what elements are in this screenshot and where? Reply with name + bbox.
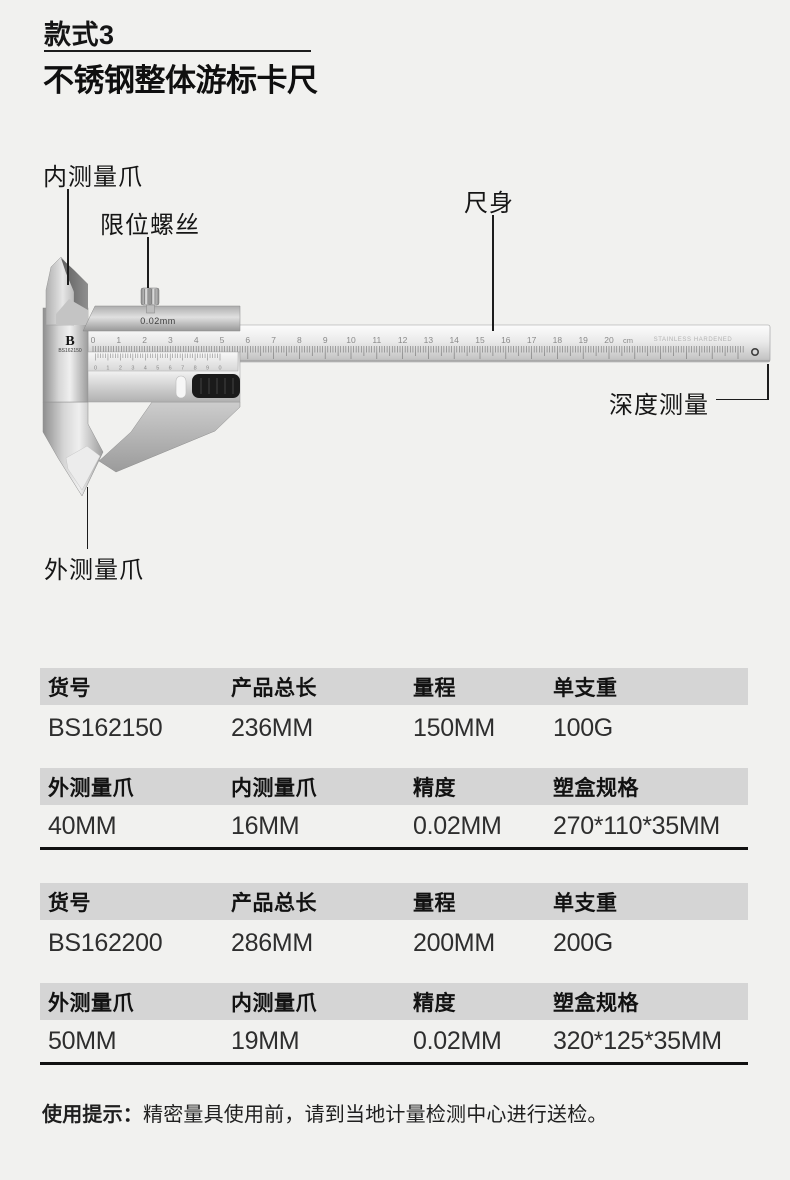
svg-text:9: 9 <box>323 335 328 345</box>
svg-text:1: 1 <box>106 366 109 372</box>
product-detail-page: 款式3 不锈钢整体游标卡尺 <box>0 0 790 1180</box>
spec-value-cell: 200MM <box>409 929 549 958</box>
spec-value-cell: BS162200 <box>40 929 227 958</box>
svg-text:9: 9 <box>206 366 209 372</box>
depth-hole <box>752 349 758 355</box>
style-label: 款式3 <box>44 13 115 52</box>
callout-inner-jaw: 内测量爪 <box>43 157 143 192</box>
svg-text:18: 18 <box>553 335 563 345</box>
svg-text:7: 7 <box>181 366 184 372</box>
spec-header-cell: 塑盒规格 <box>549 772 748 802</box>
spec-value-cell: 286MM <box>227 929 409 958</box>
svg-text:7: 7 <box>271 335 276 345</box>
callout-beam: 尺身 <box>464 183 514 218</box>
brand-logo: B <box>65 334 74 349</box>
title-divider <box>44 50 311 52</box>
usage-note-prefix: 使用提示： <box>42 1104 143 1126</box>
leader-depth-horizontal <box>716 399 768 401</box>
spec-header-cell: 精度 <box>409 987 549 1017</box>
callout-limit-screw: 限位螺丝 <box>100 205 200 240</box>
spec-header-cell: 量程 <box>409 672 549 702</box>
leader-limit-screw <box>147 237 149 288</box>
svg-text:4: 4 <box>194 335 199 345</box>
svg-text:8: 8 <box>194 366 197 372</box>
spec-header-cell: 精度 <box>409 772 549 802</box>
spec-value-row: 40MM 16MM 0.02MM 270*110*35MM <box>40 805 748 847</box>
svg-text:6: 6 <box>169 366 172 372</box>
spec-value-cell: 270*110*35MM <box>549 812 748 841</box>
svg-text:5: 5 <box>220 335 225 345</box>
usage-note: 使用提示：精密量具使用前，请到当地计量检测中心进行送检。 <box>42 1098 608 1127</box>
svg-text:14: 14 <box>449 335 459 345</box>
spec-header-cell: 货号 <box>40 887 227 917</box>
outer-jaw-movable <box>99 402 240 472</box>
slider-slot <box>176 376 186 398</box>
spec-value-cell: 100G <box>549 714 748 743</box>
svg-text:3: 3 <box>168 335 173 345</box>
svg-text:20: 20 <box>604 335 614 345</box>
model-engraving: BS162150 <box>58 348 82 354</box>
caliper-diagram: 01234567891011121314151617181920cmSTAINL… <box>0 140 790 610</box>
svg-text:0: 0 <box>91 335 96 345</box>
spec-value-row: BS162150 236MM 150MM 100G <box>40 705 748 768</box>
svg-text:1: 1 <box>116 335 121 345</box>
spec-header-cell: 货号 <box>40 672 227 702</box>
svg-text:16: 16 <box>501 335 511 345</box>
leader-beam <box>492 215 494 331</box>
spec-header-cell: 外测量爪 <box>40 987 227 1017</box>
svg-text:11: 11 <box>372 335 381 345</box>
svg-text:STAINLESS HARDENED: STAINLESS HARDENED <box>654 337 733 343</box>
svg-text:4: 4 <box>144 366 147 372</box>
spec-header-row: 货号 产品总长 量程 单支重 <box>40 883 748 920</box>
spec-value-cell: 40MM <box>40 812 227 841</box>
svg-text:13: 13 <box>424 335 434 345</box>
callout-outer-jaw: 外测量爪 <box>44 550 144 585</box>
spec-value-cell: BS162150 <box>40 714 227 743</box>
leader-outer-jaw <box>87 487 89 549</box>
outer-jaw-fixed <box>43 402 103 496</box>
callout-depth: 深度测量 <box>609 385 709 420</box>
spec-header-cell: 量程 <box>409 887 549 917</box>
thumb-grip <box>192 374 240 398</box>
spec-value-row: 50MM 19MM 0.02MM 320*125*35MM <box>40 1020 748 1062</box>
svg-text:2: 2 <box>142 335 147 345</box>
spec-header-row: 外测量爪 内测量爪 精度 塑盒规格 <box>40 983 748 1020</box>
svg-text:0: 0 <box>218 366 221 372</box>
svg-text:17: 17 <box>527 335 537 345</box>
svg-text:3: 3 <box>131 366 134 372</box>
spec-value-cell: 150MM <box>409 714 549 743</box>
spec-header-cell: 塑盒规格 <box>549 987 748 1017</box>
spec-header-cell: 内测量爪 <box>227 987 409 1017</box>
leader-inner-jaw <box>67 189 69 285</box>
table-bottom-rule <box>40 847 748 850</box>
svg-text:10: 10 <box>346 335 356 345</box>
spec-header-row: 货号 产品总长 量程 单支重 <box>40 668 748 705</box>
spec-value-cell: 19MM <box>227 1027 409 1056</box>
svg-text:12: 12 <box>398 335 408 345</box>
spec-header-row: 外测量爪 内测量爪 精度 塑盒规格 <box>40 768 748 805</box>
spec-value-cell: 0.02MM <box>409 812 549 841</box>
spec-table-bs162150: 货号 产品总长 量程 单支重 BS162150 236MM 150MM 100G… <box>40 668 748 850</box>
spec-header-cell: 内测量爪 <box>227 772 409 802</box>
spec-value-cell: 236MM <box>227 714 409 743</box>
spec-value-cell: 0.02MM <box>409 1027 549 1056</box>
svg-text:0: 0 <box>94 366 97 372</box>
spec-value-cell: 320*125*35MM <box>549 1027 748 1056</box>
svg-text:cm: cm <box>623 336 633 345</box>
leader-depth-vertical <box>767 364 769 400</box>
spec-header-cell: 产品总长 <box>227 672 409 702</box>
spec-header-cell: 单支重 <box>549 672 748 702</box>
vernier-precision-label: 0.02mm <box>140 316 176 326</box>
svg-text:15: 15 <box>475 335 485 345</box>
spec-value-row: BS162200 286MM 200MM 200G <box>40 920 748 983</box>
spec-header-cell: 单支重 <box>549 887 748 917</box>
svg-text:2: 2 <box>119 366 122 372</box>
svg-text:5: 5 <box>156 366 159 372</box>
spec-value-cell: 16MM <box>227 812 409 841</box>
spec-header-cell: 外测量爪 <box>40 772 227 802</box>
usage-note-body: 精密量具使用前，请到当地计量检测中心进行送检。 <box>143 1104 608 1126</box>
spec-header-cell: 产品总长 <box>227 887 409 917</box>
table-bottom-rule <box>40 1062 748 1065</box>
spec-value-cell: 200G <box>549 929 748 958</box>
spec-value-cell: 50MM <box>40 1027 227 1056</box>
svg-text:8: 8 <box>297 335 302 345</box>
svg-text:6: 6 <box>245 335 250 345</box>
page-title: 不锈钢整体游标卡尺 <box>43 55 318 100</box>
svg-text:19: 19 <box>578 335 588 345</box>
spec-table-bs162200: 货号 产品总长 量程 单支重 BS162200 286MM 200MM 200G… <box>40 883 748 1065</box>
